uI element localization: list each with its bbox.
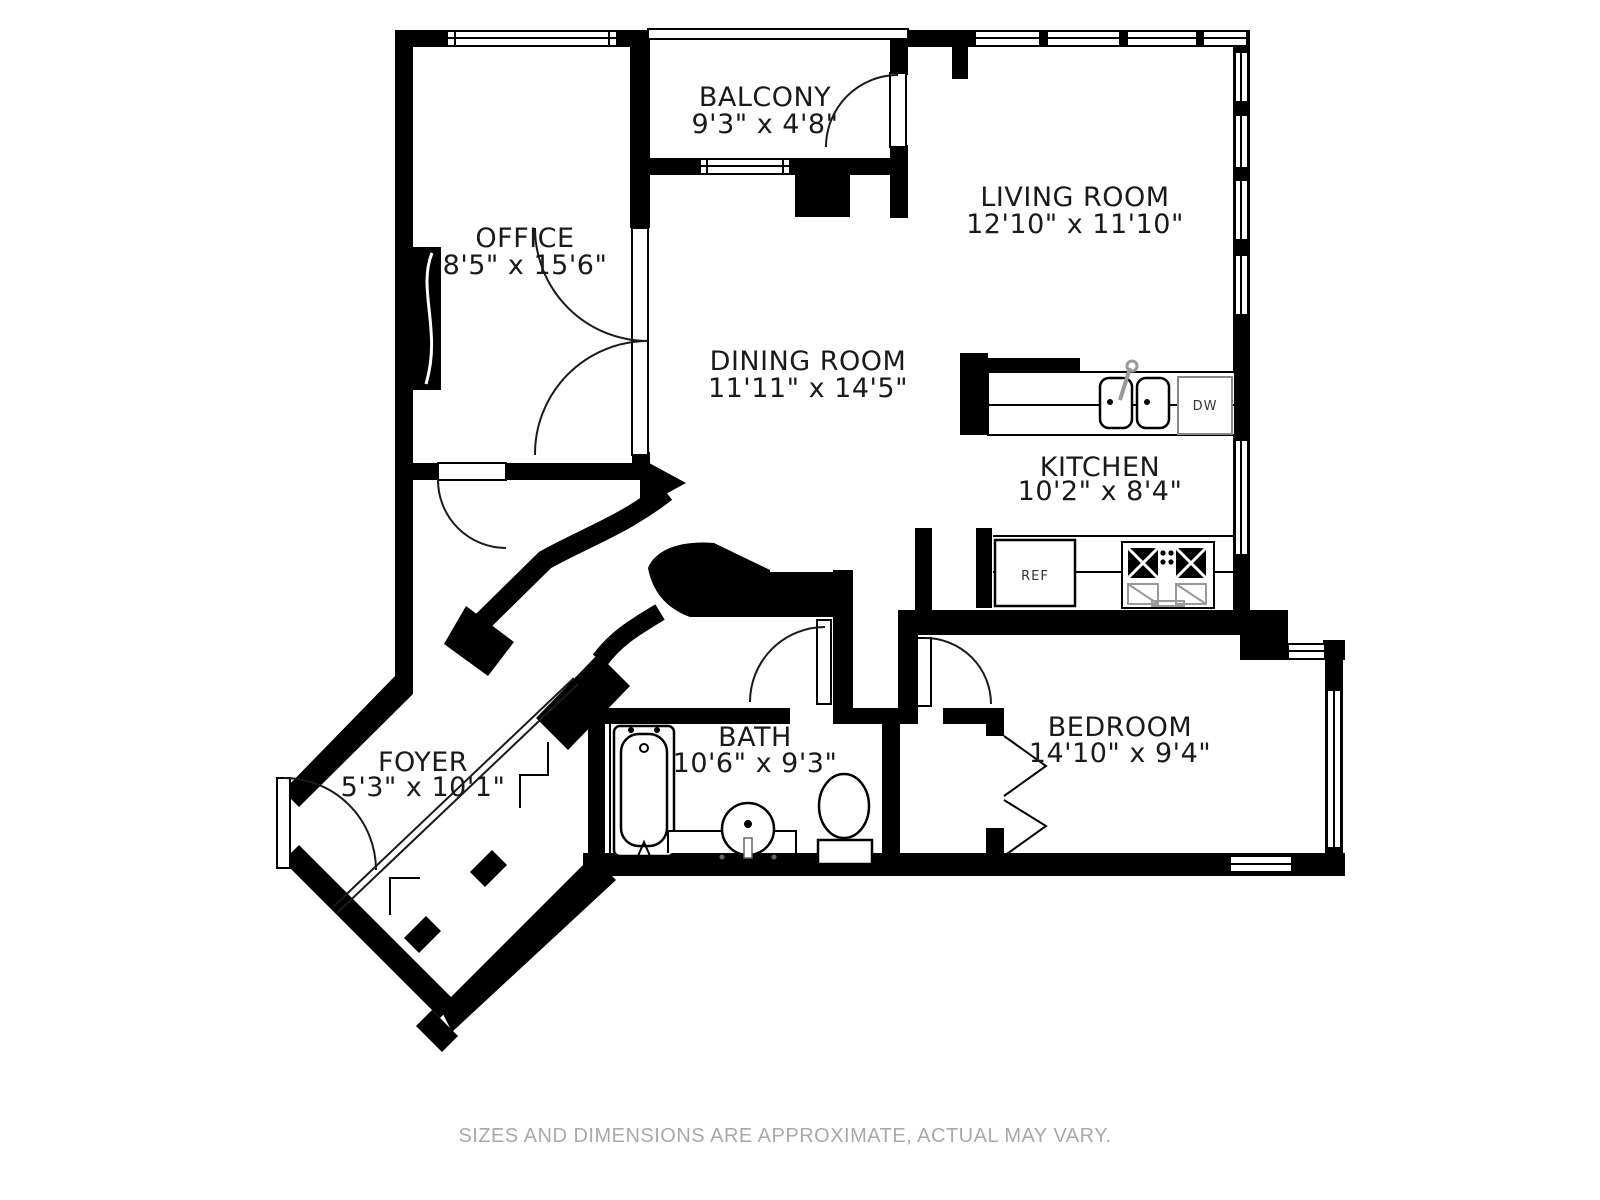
bathtub-icon xyxy=(614,726,674,856)
bedroom-dims: 14'10" x 9'4" xyxy=(1029,738,1211,769)
office-window-icon xyxy=(447,31,617,46)
toilet-icon xyxy=(818,774,872,864)
balcony-dims: 9'3" x 4'8" xyxy=(691,109,838,140)
dishwasher-label: DW xyxy=(1193,399,1218,414)
bedroom-door-icon xyxy=(917,638,991,706)
floor-plan-drawing: DW REF xyxy=(0,0,1600,1200)
kitchen-window-icon xyxy=(1235,440,1248,555)
bath-door-icon xyxy=(750,620,831,704)
office-hall-door-icon xyxy=(438,463,506,548)
room-labels: BALCONY 9'3" x 4'8" LIVING ROOM 12'10" x… xyxy=(341,82,1212,803)
living-room-top-windows-icon xyxy=(975,31,1247,46)
office-dims: 8'5" x 15'6" xyxy=(443,250,608,281)
balcony-railing-icon xyxy=(648,29,908,39)
dishwasher-icon: DW xyxy=(1178,377,1232,434)
bath-sink-icon xyxy=(668,803,796,860)
refrigerator-label: REF xyxy=(1021,569,1049,584)
dining-room-dims: 11'11" x 14'5" xyxy=(708,373,908,404)
bath-dims: 10'6" x 9'3" xyxy=(673,748,838,779)
living-room-dims: 12'10" x 11'10" xyxy=(966,209,1184,240)
foyer-dims: 5'3" x 10'1" xyxy=(341,772,506,803)
disclaimer-text: SIZES AND DIMENSIONS ARE APPROXIMATE, AC… xyxy=(458,1125,1111,1147)
stove-icon xyxy=(1122,542,1214,608)
kitchen-dims: 10'2" x 8'4" xyxy=(1018,476,1183,507)
refrigerator-icon: REF xyxy=(995,540,1075,606)
floor-plan-page: DW REF xyxy=(0,0,1600,1200)
bedroom-windows-icon xyxy=(1230,644,1341,872)
living-room-side-windows-icon xyxy=(1235,52,1248,315)
balcony-window-icon xyxy=(700,159,790,174)
